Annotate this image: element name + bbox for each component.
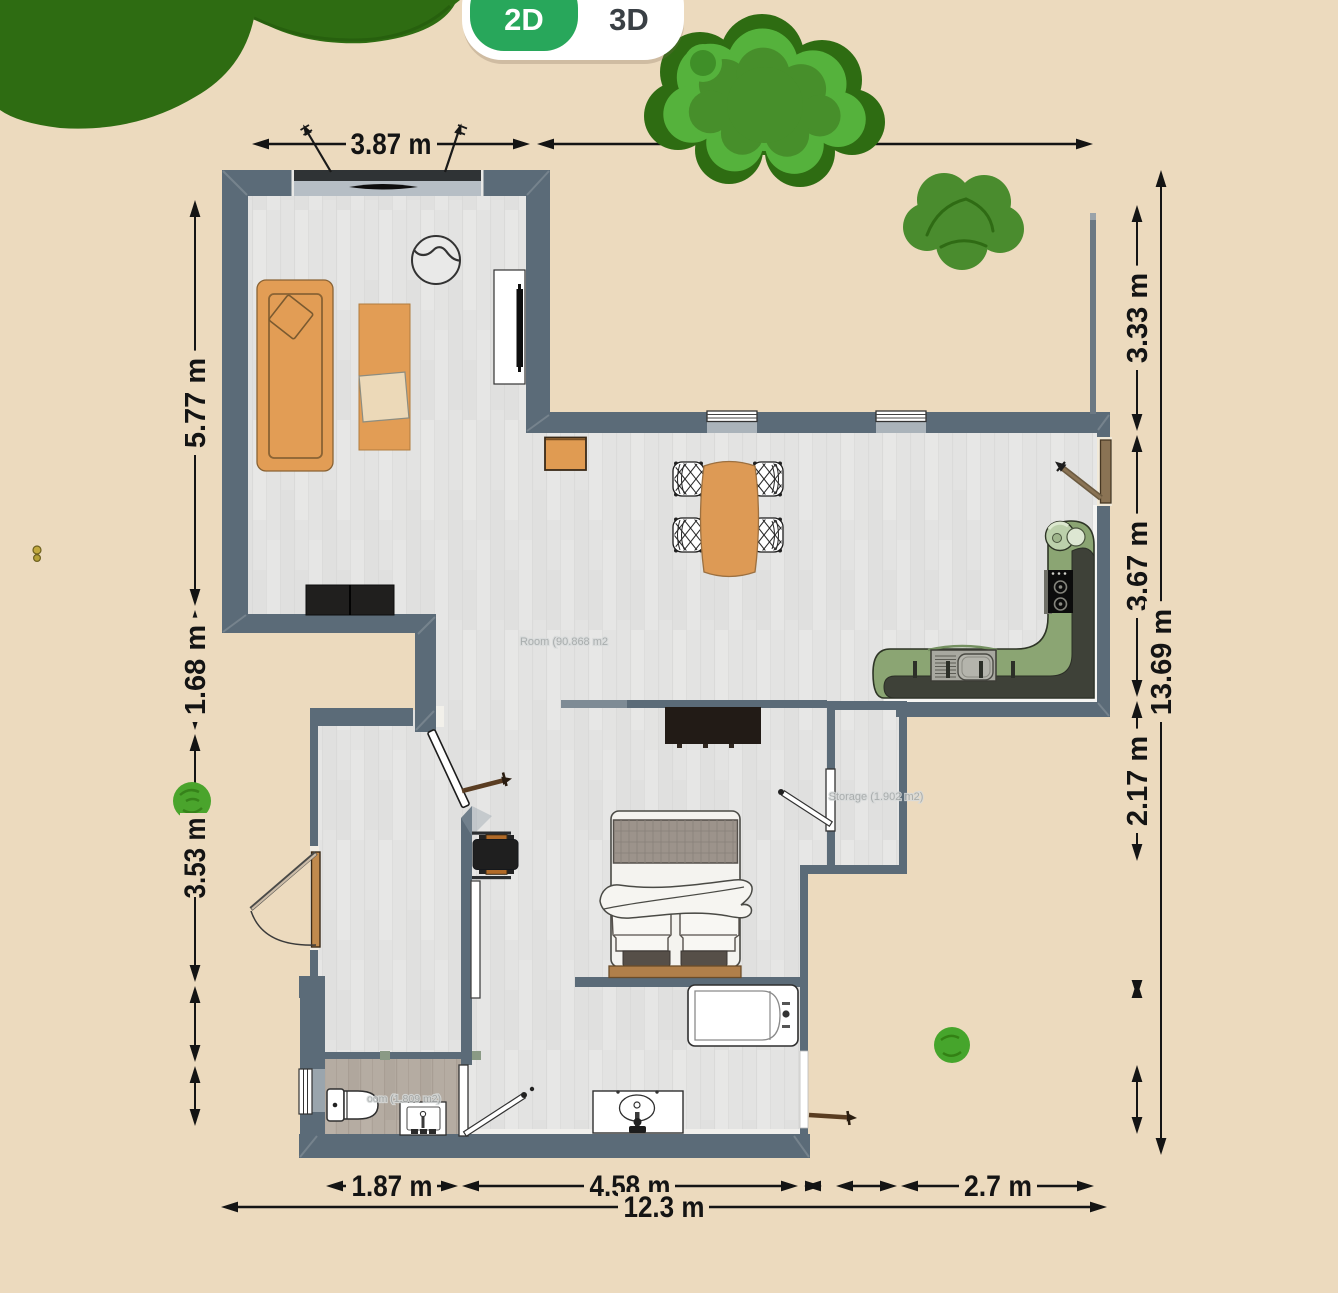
- svg-text:3D: 3D: [609, 2, 649, 37]
- svg-text:Room (90.868 m2: Room (90.868 m2: [520, 636, 608, 648]
- svg-text:2D: 2D: [504, 2, 544, 37]
- svg-text:1.68 m: 1.68 m: [180, 625, 212, 715]
- svg-text:oom (1.809 m2): oom (1.809 m2): [367, 1093, 441, 1105]
- svg-text:1.87 m: 1.87 m: [352, 1170, 433, 1203]
- svg-text:Storage (1.902 m2): Storage (1.902 m2): [829, 791, 924, 803]
- svg-text:13.69 m: 13.69 m: [1146, 609, 1178, 715]
- svg-text:12.3 m: 12.3 m: [624, 1191, 705, 1224]
- svg-text:2.7 m: 2.7 m: [964, 1170, 1032, 1203]
- svg-text:5.77 m: 5.77 m: [180, 358, 212, 448]
- svg-text:3.33 m: 3.33 m: [1122, 273, 1154, 363]
- svg-text:3.67 m: 3.67 m: [1122, 521, 1154, 611]
- svg-text:3.87 m: 3.87 m: [351, 128, 432, 161]
- svg-text:3.53 m: 3.53 m: [179, 818, 212, 899]
- svg-text:2.17 m: 2.17 m: [1122, 736, 1154, 826]
